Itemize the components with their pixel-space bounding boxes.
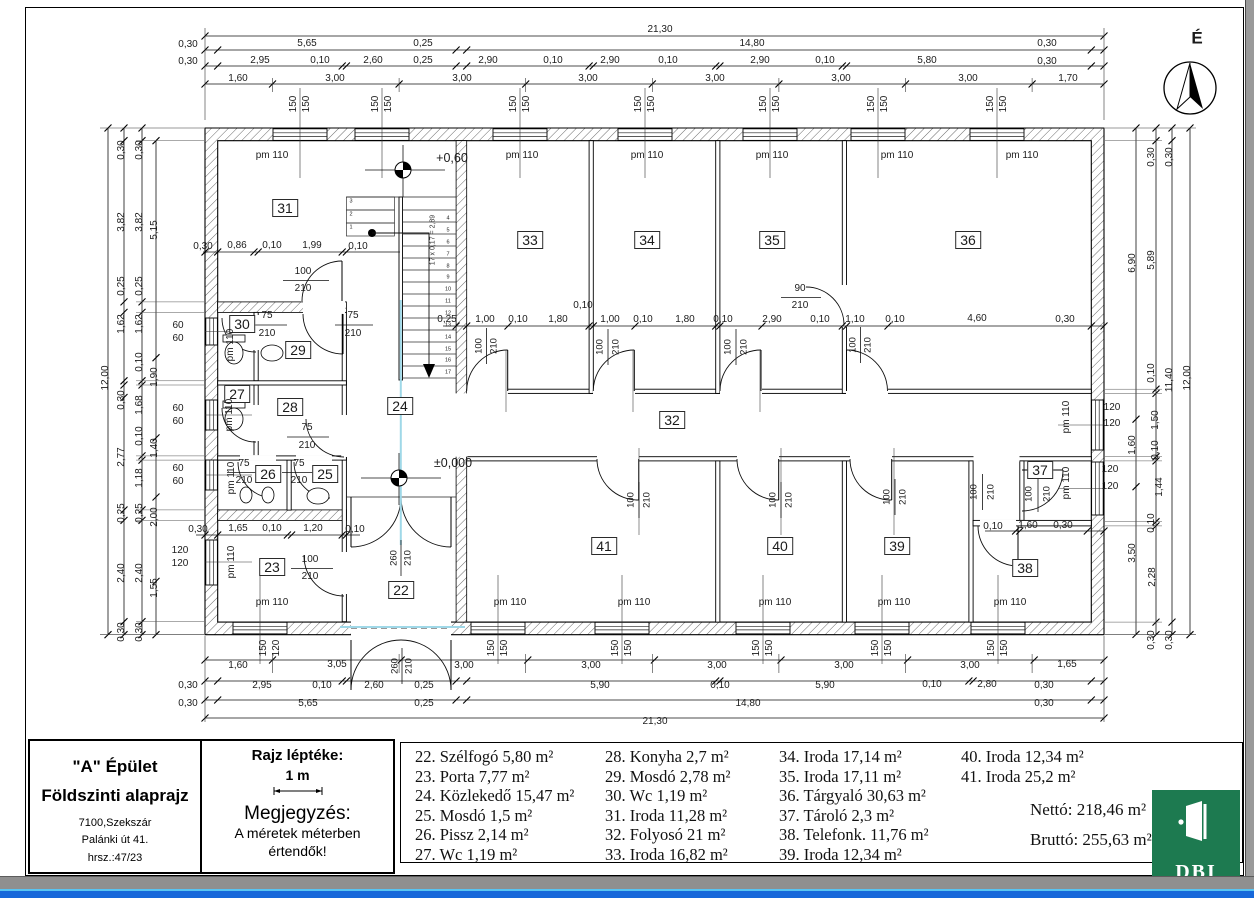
dim-label: 3,50 bbox=[1128, 543, 1138, 562]
dim-label: 0,30 bbox=[1037, 39, 1056, 49]
dim-label: 0,30 bbox=[1165, 147, 1175, 166]
dim-label: 3,00 bbox=[958, 74, 977, 84]
dim-label: 4,60 bbox=[967, 314, 986, 324]
dim-label: 0,25 bbox=[437, 315, 456, 325]
door-size-label: 210 bbox=[863, 337, 873, 353]
dim-label: 1,90 bbox=[150, 367, 160, 386]
dim-label: 0,10 bbox=[312, 681, 331, 691]
dim-label: 0,10 bbox=[310, 56, 329, 66]
note-title: Megjegyzés: bbox=[202, 803, 393, 825]
dim-label: 0,10 bbox=[810, 315, 829, 325]
legend-entry: 41. Iroda 25,2 m² bbox=[961, 767, 1084, 787]
dim-label: 150 bbox=[647, 96, 657, 113]
door-size-label: 210 bbox=[611, 339, 621, 355]
dim-label: 12,00 bbox=[1183, 365, 1193, 390]
door-size-label: 210 bbox=[345, 329, 362, 339]
room-number: 28 bbox=[277, 398, 303, 416]
parapet-label: pm 110 bbox=[759, 598, 792, 608]
door-size-label: 210 bbox=[291, 476, 308, 486]
dim-label: 0,86 bbox=[227, 241, 246, 251]
dim-label: 0,30 bbox=[1034, 681, 1053, 691]
legend-entry: 23. Porta 7,77 m² bbox=[415, 767, 574, 787]
stair-tread-number: 2 bbox=[349, 212, 352, 218]
dim-label: 14,80 bbox=[735, 699, 760, 709]
scale-bar-icon bbox=[268, 786, 328, 796]
room-number: 26 bbox=[255, 465, 281, 483]
dim-label: 1,00 bbox=[475, 315, 494, 325]
door-size-label: 210 bbox=[236, 476, 253, 486]
legend-entry: 31. Iroda 11,28 m² bbox=[605, 806, 731, 826]
dim-label: 3,00 bbox=[581, 661, 600, 671]
stair-tread-number: 11 bbox=[445, 299, 451, 305]
dim-label: 1,65 bbox=[1057, 660, 1076, 670]
dim-label: 3,00 bbox=[325, 74, 344, 84]
room-number: 31 bbox=[272, 199, 298, 217]
parapet-label: pm 110 bbox=[1062, 467, 1072, 500]
dim-label: 0,30 bbox=[117, 390, 127, 409]
dim-label: 150 bbox=[772, 96, 782, 113]
dim-label: 0,30 bbox=[117, 622, 127, 641]
dim-label: 1,20 bbox=[303, 524, 322, 534]
dim-label: 120 bbox=[1102, 482, 1119, 492]
door-size-label: 210 bbox=[739, 339, 749, 355]
dim-label: 150 bbox=[867, 96, 877, 113]
parapet-label: pm 110 bbox=[878, 598, 911, 608]
dim-label: 1,60 bbox=[228, 661, 247, 671]
parapet-label: pm 110 bbox=[631, 151, 664, 161]
parapet-label: pm 110 bbox=[1062, 401, 1072, 434]
legend-entry: 30. Wc 1,19 m² bbox=[605, 786, 731, 806]
door-size-label: 210 bbox=[642, 492, 652, 508]
dim-label: 0,30 bbox=[178, 57, 197, 67]
dim-label: 1,40 bbox=[150, 438, 160, 457]
parapet-label: pm 110 bbox=[256, 151, 289, 161]
dim-label: 12,00 bbox=[101, 365, 111, 390]
parapet-label: pm 110 bbox=[618, 598, 651, 608]
door-size-label: 210 bbox=[404, 658, 414, 674]
dim-label: 5,65 bbox=[297, 39, 316, 49]
dim-label: 60 bbox=[172, 477, 183, 487]
dim-label: 0,10 bbox=[262, 524, 281, 534]
room-number: 36 bbox=[955, 231, 981, 249]
dim-label: 1,62 bbox=[117, 314, 127, 333]
room-number: 41 bbox=[591, 537, 617, 555]
dim-label: 150 bbox=[509, 96, 519, 113]
dim-label: 120 bbox=[1102, 465, 1119, 475]
dim-label: 1,70 bbox=[1058, 74, 1077, 84]
parapet-label: pm 110 bbox=[756, 151, 789, 161]
room-number: 23 bbox=[259, 558, 285, 576]
dim-label: 21,30 bbox=[642, 717, 667, 727]
dim-label: 0,30 bbox=[1147, 147, 1157, 166]
address-line: 7100,Szekszár bbox=[30, 815, 200, 833]
note-line: értendők! bbox=[202, 843, 393, 861]
dim-label: 3,00 bbox=[831, 74, 850, 84]
title-block-left: "A" Épület Földszinti alaprajz 7100,Szek… bbox=[30, 741, 202, 872]
dim-label: 5,89 bbox=[1147, 250, 1157, 269]
dim-label: 60 bbox=[172, 417, 183, 427]
dim-label: 120 bbox=[1104, 403, 1121, 413]
dim-label: 3,00 bbox=[707, 661, 726, 671]
room-number: 38 bbox=[1012, 559, 1038, 577]
dim-label: 0,30 bbox=[1147, 630, 1157, 649]
dim-label: 120 bbox=[272, 640, 282, 657]
dim-label: 0,30 bbox=[1055, 315, 1074, 325]
dim-label: 2,00 bbox=[150, 507, 160, 526]
dim-label: 0,10 bbox=[135, 352, 145, 371]
dim-label: 0,30 bbox=[188, 525, 207, 535]
dim-label: 0,30 bbox=[178, 681, 197, 691]
dim-label: 1,50 bbox=[1151, 410, 1161, 429]
dim-label: 150 bbox=[999, 96, 1009, 113]
legend-column: 34. Iroda 17,14 m²35. Iroda 17,11 m²36. … bbox=[779, 747, 929, 865]
dim-label: 0,10 bbox=[345, 525, 364, 535]
dim-label: 150 bbox=[884, 640, 894, 657]
dim-label: 1,10 bbox=[845, 315, 864, 325]
dim-label: 2,90 bbox=[478, 56, 497, 66]
room-number: 35 bbox=[759, 231, 785, 249]
dim-label: 0,30 bbox=[1053, 521, 1072, 531]
dim-label: 14,80 bbox=[739, 39, 764, 49]
legend-entry: 36. Tárgyaló 30,63 m² bbox=[779, 786, 929, 806]
dim-label: 0,25 bbox=[117, 276, 127, 295]
door-size-label: 100 bbox=[882, 489, 892, 505]
dim-label: 150 bbox=[487, 640, 497, 657]
level-label: ±0,000 bbox=[434, 457, 472, 470]
dim-label: 2,95 bbox=[252, 681, 271, 691]
legend-entry: 37. Tároló 2,3 m² bbox=[779, 806, 929, 826]
vertical-scrollbar[interactable] bbox=[1245, 0, 1254, 877]
door-size-label: 210 bbox=[792, 301, 809, 311]
door-size-label: 100 bbox=[302, 555, 319, 565]
dim-label: 2,90 bbox=[600, 56, 619, 66]
dim-label: 0,10 bbox=[543, 56, 562, 66]
dim-label: 1,55 bbox=[150, 578, 160, 597]
dim-label: 0,10 bbox=[573, 301, 592, 311]
dim-label: 0,30 bbox=[1037, 57, 1056, 67]
door-size-label: 75 bbox=[301, 423, 312, 433]
legend-entry: 40. Iroda 12,34 m² bbox=[961, 747, 1084, 767]
door-size-label: 100 bbox=[474, 338, 484, 354]
dim-label: 1,18 bbox=[135, 468, 145, 487]
dim-label: 150 bbox=[611, 640, 621, 657]
parapet-label: pm 110 bbox=[881, 151, 914, 161]
dim-label: 2,95 bbox=[250, 56, 269, 66]
dim-label: 150 bbox=[987, 640, 997, 657]
address-line: Palánki út 41. bbox=[30, 832, 200, 850]
dim-label: 60 bbox=[172, 464, 183, 474]
dim-label: 21,30 bbox=[647, 25, 672, 35]
parapet-label: pm 110 bbox=[506, 151, 539, 161]
dim-label: 2,28 bbox=[1148, 567, 1158, 586]
door-size-label: 100 bbox=[1024, 486, 1034, 502]
dim-label: 150 bbox=[259, 640, 269, 657]
dim-label: 2,60 bbox=[363, 56, 382, 66]
dim-label: 3,05 bbox=[327, 660, 346, 670]
stair-tread-number: 6 bbox=[446, 240, 449, 246]
door-size-label: 75 bbox=[238, 459, 249, 469]
legend-entry: 27. Wc 1,19 m² bbox=[415, 845, 574, 865]
parapet-label: pm 110 bbox=[494, 598, 527, 608]
address-line: hrsz.:47/23 bbox=[30, 850, 200, 868]
door-size-label: 210 bbox=[986, 484, 996, 500]
dim-label: 0,30 bbox=[135, 622, 145, 641]
door-size-label: 100 bbox=[848, 337, 858, 353]
dim-label: 150 bbox=[752, 640, 762, 657]
door-size-label: 100 bbox=[969, 484, 979, 500]
dim-label: 0,30 bbox=[193, 242, 212, 252]
legend-column: 22. Szélfogó 5,80 m²23. Porta 7,77 m²24.… bbox=[415, 747, 574, 865]
dim-label: 0,25 bbox=[117, 503, 127, 522]
dim-label: 1,00 bbox=[600, 315, 619, 325]
dim-label: 0,10 bbox=[885, 315, 904, 325]
dim-label: 0,10 bbox=[922, 680, 941, 690]
dim-label: 0,25 bbox=[413, 39, 432, 49]
parapet-label: pm 110 bbox=[994, 598, 1027, 608]
dim-label: 5,80 bbox=[917, 56, 936, 66]
room-number: 24 bbox=[387, 397, 413, 415]
dim-label: 150 bbox=[302, 96, 312, 113]
dim-label: 0,10 bbox=[658, 56, 677, 66]
dim-label: 5,65 bbox=[298, 699, 317, 709]
door-size-label: 210 bbox=[299, 441, 316, 451]
door-size-label: 100 bbox=[723, 339, 733, 355]
dim-label: 0,10 bbox=[713, 315, 732, 325]
dim-label: 150 bbox=[1000, 640, 1010, 657]
dbi-logo: DBI bbox=[1152, 790, 1240, 884]
dim-label: 2,80 bbox=[977, 680, 996, 690]
dim-label: 150 bbox=[384, 96, 394, 113]
door-size-label: 210 bbox=[1042, 486, 1052, 502]
dim-label: 6,90 bbox=[1128, 253, 1138, 272]
legend-entry: 25. Mosdó 1,5 m² bbox=[415, 806, 574, 826]
door-size-label: 210 bbox=[302, 572, 319, 582]
room-number: 22 bbox=[388, 581, 414, 599]
legend-column: 40. Iroda 12,34 m²41. Iroda 25,2 m² bbox=[961, 747, 1084, 786]
legend-entry: 39. Iroda 12,34 m² bbox=[779, 845, 929, 865]
dim-label: 0,10 bbox=[1151, 440, 1161, 459]
dim-label: 0,10 bbox=[135, 426, 145, 445]
dim-label: 120 bbox=[172, 546, 189, 556]
dim-label: 0,25 bbox=[414, 681, 433, 691]
door-size-label: 100 bbox=[595, 339, 605, 355]
note-line: A méretek méterben bbox=[202, 825, 393, 843]
dim-label: 0,30 bbox=[178, 40, 197, 50]
scale-note-block: Rajz léptéke: 1 m Megjegyzés: A méretek … bbox=[202, 741, 393, 872]
legend-entry: 38. Telefonk. 11,76 m² bbox=[779, 825, 929, 845]
door-size-label: 75 bbox=[293, 459, 304, 469]
dim-label: 0,10 bbox=[1147, 513, 1157, 532]
title-block: "A" Épület Földszinti alaprajz 7100,Szek… bbox=[28, 739, 395, 874]
level-label: +0,60 bbox=[436, 152, 468, 165]
dim-label: 150 bbox=[500, 640, 510, 657]
parapet-label: pm 110 bbox=[226, 329, 236, 362]
dim-label: 120 bbox=[172, 559, 189, 569]
dim-label: 120 bbox=[1104, 419, 1121, 429]
door-icon bbox=[1174, 798, 1218, 854]
dim-label: 1,60 bbox=[1128, 435, 1138, 454]
building-title: "A" Épület bbox=[30, 753, 200, 782]
taskbar[interactable] bbox=[0, 889, 1254, 898]
stair-tread-number: 5 bbox=[446, 228, 449, 234]
door-size-label: 210 bbox=[784, 492, 794, 508]
stair-tread-number: 17 bbox=[445, 370, 451, 376]
door-size-label: 210 bbox=[898, 489, 908, 505]
dim-label: 2,40 bbox=[135, 563, 145, 582]
scale-value: 1 m bbox=[202, 767, 393, 783]
dim-label: 5,90 bbox=[590, 681, 609, 691]
dim-label: 2,60 bbox=[364, 681, 383, 691]
dim-label: 5,15 bbox=[150, 220, 160, 239]
dim-label: 0,30 bbox=[117, 140, 127, 159]
dim-label: 0,10 bbox=[262, 241, 281, 251]
dim-label: 3,00 bbox=[705, 74, 724, 84]
dim-label: 0,30 bbox=[1034, 699, 1053, 709]
dim-label: 2,77 bbox=[117, 447, 127, 466]
app-window: 2223242526272829303132333435363738394041… bbox=[0, 0, 1254, 898]
dim-label: 0,10 bbox=[348, 242, 367, 252]
door-size-label: 260 bbox=[390, 658, 400, 674]
dim-label: 150 bbox=[522, 96, 532, 113]
scale-label: Rajz léptéke: bbox=[202, 747, 393, 764]
room-number: 29 bbox=[285, 341, 311, 359]
door-size-label: 100 bbox=[295, 267, 312, 277]
dim-label: 1,68 bbox=[135, 395, 145, 414]
dim-label: 3,00 bbox=[960, 661, 979, 671]
dim-label: 3,00 bbox=[834, 661, 853, 671]
dim-label: 150 bbox=[871, 640, 881, 657]
dim-label: 0,25 bbox=[414, 699, 433, 709]
legend-column: 28. Konyha 2,7 m²29. Mosdó 2,78 m²30. Wc… bbox=[605, 747, 731, 865]
parapet-label: pm 110 bbox=[227, 546, 237, 579]
door-size-label: 100 bbox=[768, 492, 778, 508]
dim-label: 3,82 bbox=[117, 212, 127, 231]
north-label: É bbox=[1191, 30, 1202, 47]
dim-label: 150 bbox=[986, 96, 996, 113]
stair-tread-number: 8 bbox=[446, 264, 449, 270]
dim-label: 0,30 bbox=[1165, 630, 1175, 649]
dim-label: 0,10 bbox=[983, 522, 1002, 532]
dim-label: 1,99 bbox=[302, 241, 321, 251]
stair-note: 17 x 0,17 = 2,89 bbox=[430, 215, 437, 265]
parapet-label: pm 110 bbox=[256, 598, 289, 608]
stair-tread-number: 3 bbox=[349, 199, 352, 205]
dim-label: 150 bbox=[880, 96, 890, 113]
dim-label: 2,40 bbox=[117, 563, 127, 582]
dim-label: 150 bbox=[759, 96, 769, 113]
dim-label: 60 bbox=[172, 321, 183, 331]
dim-label: 1,44 bbox=[1155, 477, 1165, 496]
dim-label: 0,30 bbox=[135, 140, 145, 159]
room-number: 39 bbox=[884, 537, 910, 555]
dim-label: 1,60 bbox=[1018, 521, 1037, 531]
legend-entry: 34. Iroda 17,14 m² bbox=[779, 747, 929, 767]
stair-tread-number: 15 bbox=[445, 347, 451, 353]
room-number: 33 bbox=[517, 231, 543, 249]
dim-label: 150 bbox=[765, 640, 775, 657]
legend-entry: 32. Folyosó 21 m² bbox=[605, 825, 731, 845]
room-number: 32 bbox=[659, 411, 685, 429]
dim-label: 0,30 bbox=[178, 699, 197, 709]
legend-entry: 28. Konyha 2,7 m² bbox=[605, 747, 731, 767]
dim-label: 1,65 bbox=[228, 524, 247, 534]
parapet-label: pm 110 bbox=[1006, 151, 1039, 161]
dim-label: 5,90 bbox=[815, 681, 834, 691]
stair-tread-number: 1 bbox=[349, 225, 352, 231]
door-size-label: 210 bbox=[259, 329, 276, 339]
room-number: 37 bbox=[1027, 461, 1053, 479]
dim-label: 60 bbox=[172, 334, 183, 344]
door-size-label: 210 bbox=[295, 284, 312, 294]
door-size-label: 75 bbox=[261, 311, 272, 321]
dim-label: 3,82 bbox=[135, 212, 145, 231]
window-bottom-edge bbox=[0, 876, 1254, 890]
dim-label: 0,10 bbox=[710, 681, 729, 691]
dim-label: 150 bbox=[634, 96, 644, 113]
door-size-label: 100 bbox=[626, 492, 636, 508]
stair-tread-number: 9 bbox=[446, 275, 449, 281]
dim-label: 11,40 bbox=[1165, 368, 1175, 392]
dim-label: 1,62 bbox=[135, 314, 145, 333]
room-number: 34 bbox=[634, 231, 660, 249]
dim-label: 1,60 bbox=[228, 74, 247, 84]
door-size-label: 75 bbox=[347, 311, 358, 321]
legend-entry: 35. Iroda 17,11 m² bbox=[779, 767, 929, 787]
dim-label: 0,25 bbox=[413, 56, 432, 66]
parapet-label: pm 110 bbox=[225, 399, 235, 432]
dim-label: 0,10 bbox=[508, 315, 527, 325]
dim-label: 0,25 bbox=[135, 276, 145, 295]
dim-label: 0,10 bbox=[1147, 363, 1157, 382]
door-size-label: 90 bbox=[794, 284, 805, 294]
dim-label: 0,10 bbox=[815, 56, 834, 66]
dim-label: 150 bbox=[624, 640, 634, 657]
stair-tread-number: 4 bbox=[446, 216, 449, 222]
legend-entry: 22. Szélfogó 5,80 m² bbox=[415, 747, 574, 767]
door-size-label: 210 bbox=[403, 550, 413, 566]
dim-label: 0,10 bbox=[633, 315, 652, 325]
legend-entry: 26. Pissz 2,14 m² bbox=[415, 825, 574, 845]
room-number: 40 bbox=[767, 537, 793, 555]
stair-tread-number: 14 bbox=[445, 335, 451, 341]
room-number: 25 bbox=[312, 465, 338, 483]
dim-label: 2,90 bbox=[750, 56, 769, 66]
dim-label: 3,00 bbox=[454, 661, 473, 671]
dim-label: 1,80 bbox=[675, 315, 694, 325]
legend-entry: 29. Mosdó 2,78 m² bbox=[605, 767, 731, 787]
door-size-label: 260 bbox=[389, 550, 399, 566]
legend-entry: 33. Iroda 16,82 m² bbox=[605, 845, 731, 865]
dim-label: 1,80 bbox=[548, 315, 567, 325]
dim-label: 2,90 bbox=[762, 315, 781, 325]
dim-label: 3,00 bbox=[578, 74, 597, 84]
legend-entry: 24. Közlekedő 15,47 m² bbox=[415, 786, 574, 806]
stair-tread-number: 10 bbox=[445, 287, 451, 293]
dim-label: 3,00 bbox=[452, 74, 471, 84]
door-size-label: 210 bbox=[489, 338, 499, 354]
dim-label: 0,25 bbox=[135, 503, 145, 522]
dim-label: 60 bbox=[172, 404, 183, 414]
dim-label: 150 bbox=[289, 96, 299, 113]
stair-tread-number: 16 bbox=[445, 358, 451, 364]
stair-tread-number: 7 bbox=[446, 252, 449, 258]
dim-label: 150 bbox=[371, 96, 381, 113]
drawing-title: Földszinti alaprajz bbox=[30, 782, 200, 811]
